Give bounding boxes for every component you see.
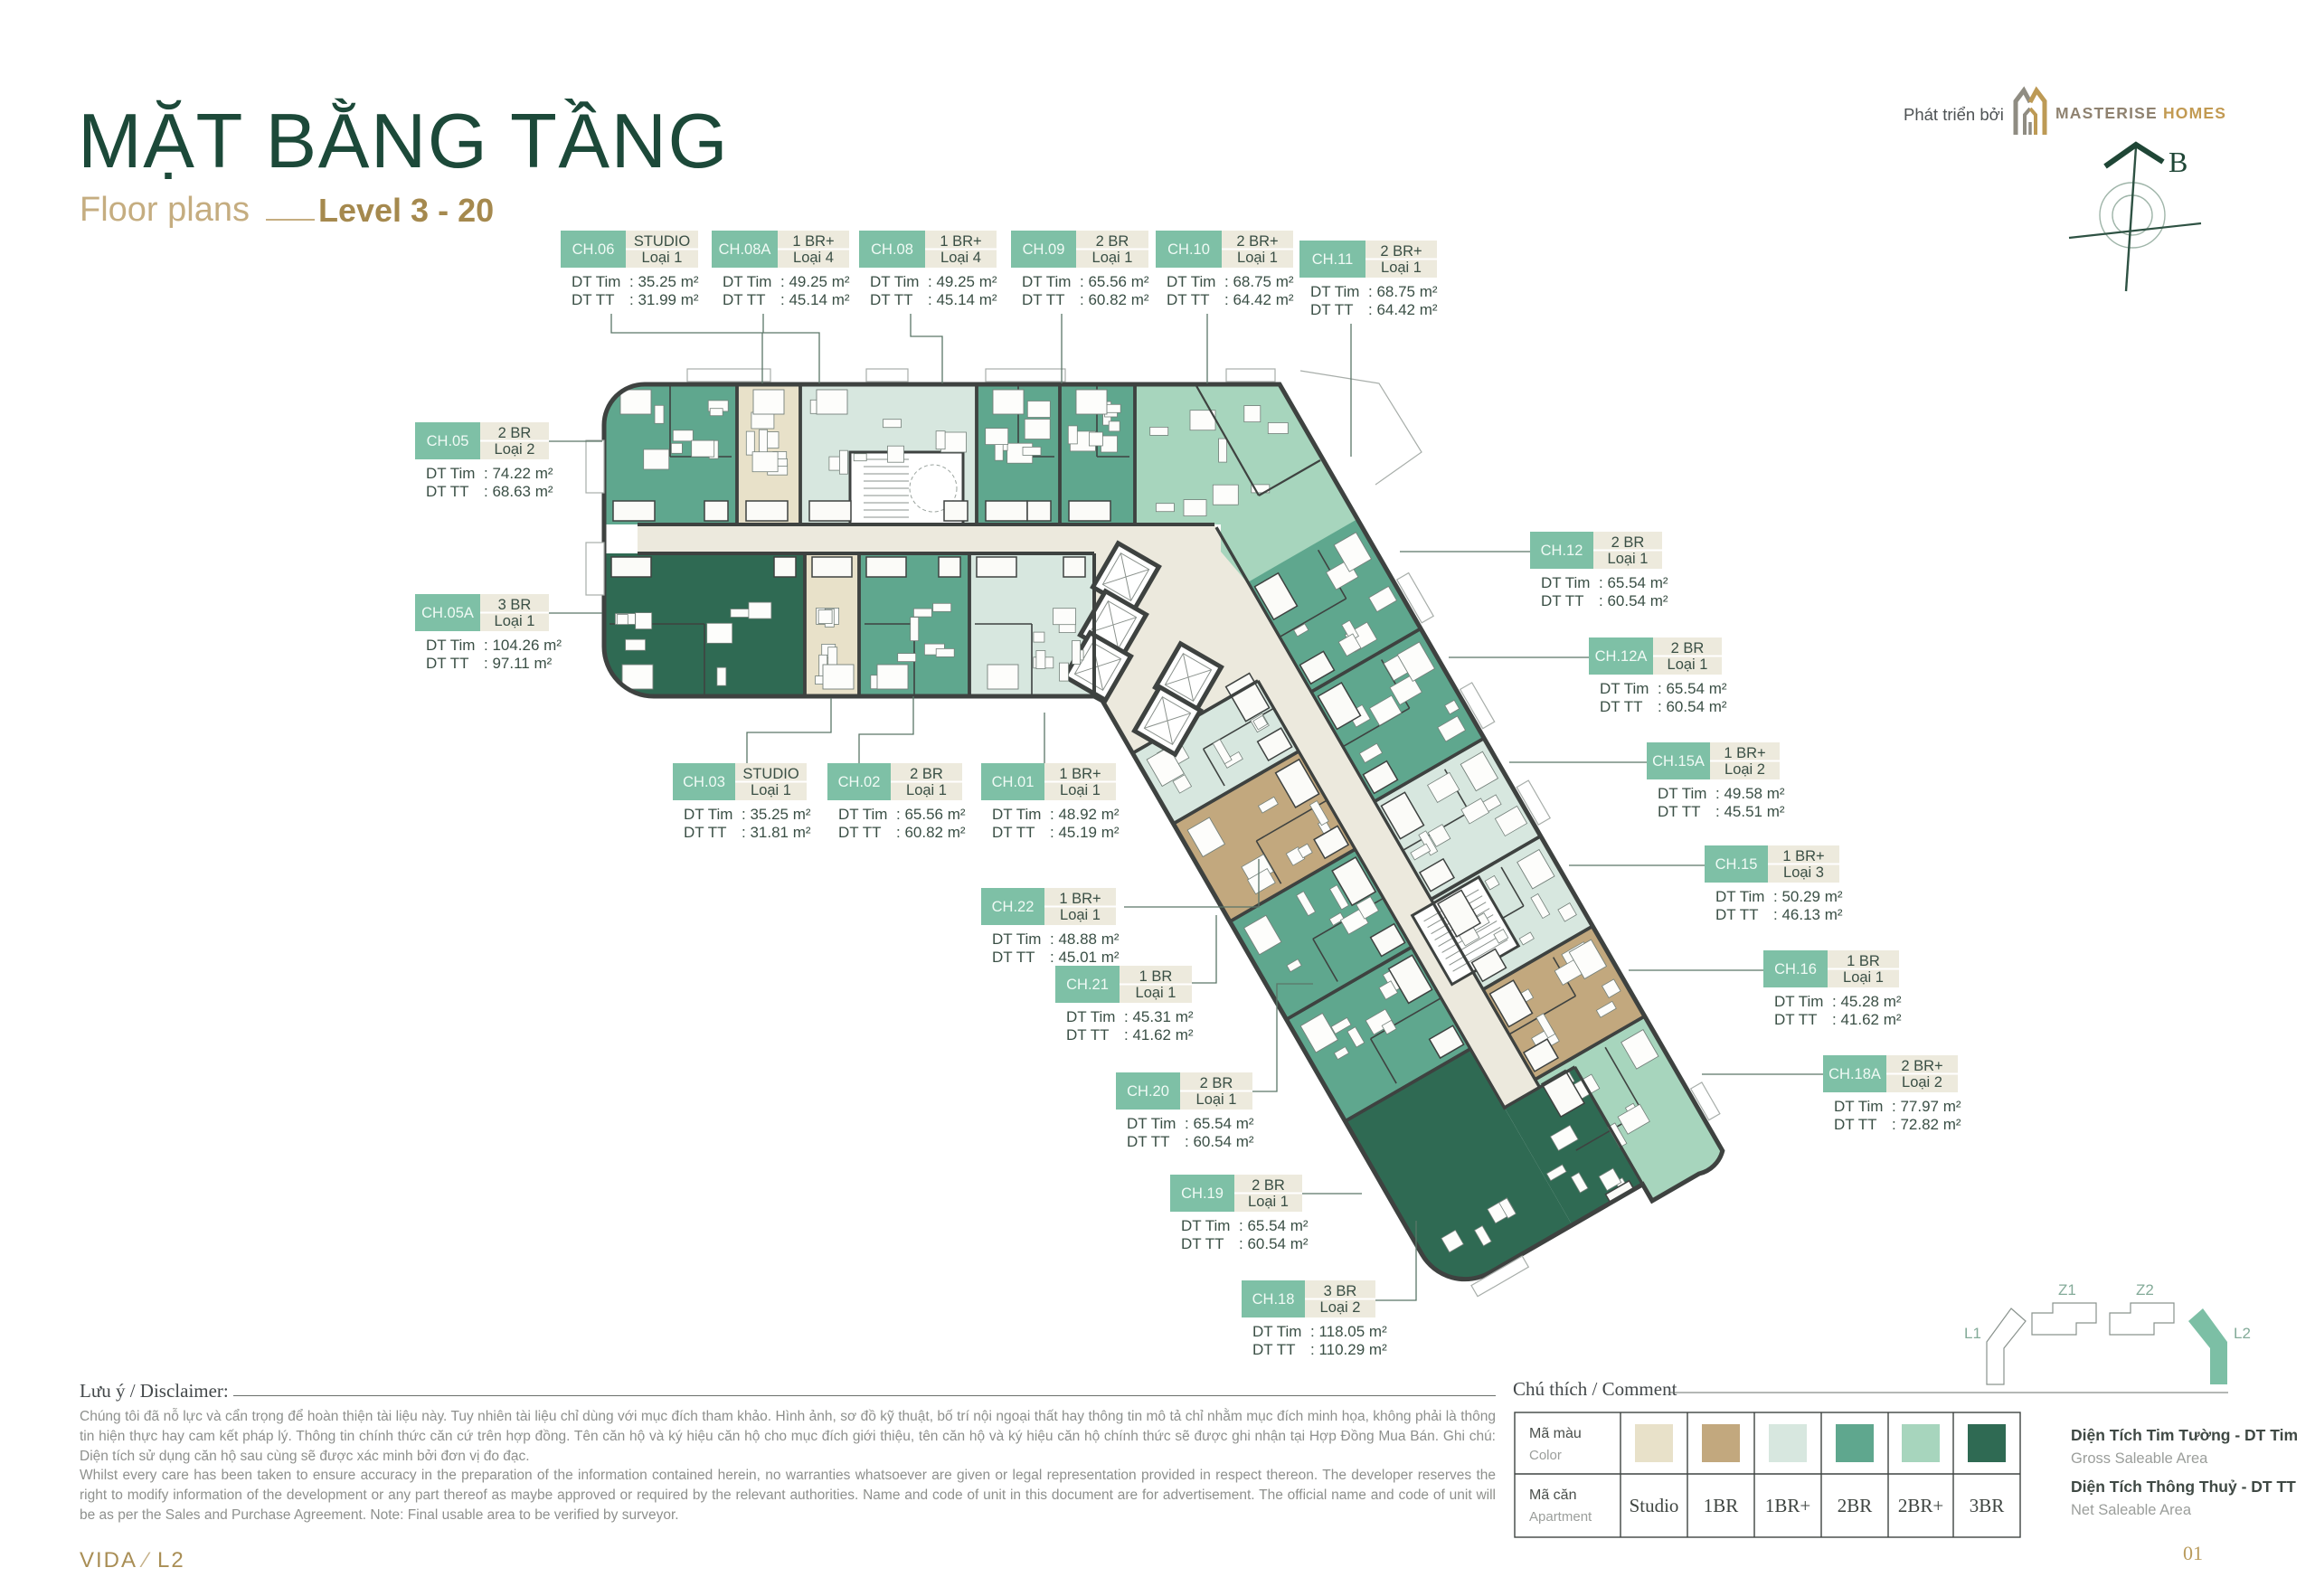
- svg-text:: 45.51 m²: : 45.51 m²: [1715, 803, 1785, 820]
- svg-text:: 31.81 m²: : 31.81 m²: [742, 824, 811, 841]
- svg-text:DT Tim: DT Tim: [1600, 680, 1649, 697]
- svg-text:1BR: 1BR: [1704, 1495, 1739, 1516]
- svg-text:CH.15: CH.15: [1715, 856, 1758, 873]
- svg-text:Mã căn: Mã căn: [1529, 1487, 1576, 1503]
- svg-text:1 BR+: 1 BR+: [940, 233, 981, 250]
- svg-text:Loại 1: Loại 1: [1237, 250, 1278, 266]
- svg-text:3BR: 3BR: [1970, 1495, 2005, 1516]
- svg-text:Loại 4: Loại 4: [940, 250, 981, 266]
- svg-text:Loại 1: Loại 1: [1668, 656, 1708, 673]
- svg-text:Diện Tích Tim Tường - DT Tim: Diện Tích Tim Tường - DT Tim: [2071, 1426, 2298, 1444]
- svg-text:2BR+: 2BR+: [1898, 1495, 1943, 1516]
- svg-text:: 48.92 m²: : 48.92 m²: [1050, 806, 1120, 823]
- svg-text:: 65.56 m²: : 65.56 m²: [896, 806, 966, 823]
- svg-text:: 45.19 m²: : 45.19 m²: [1050, 824, 1120, 841]
- svg-text:DT TT: DT TT: [1252, 1341, 1296, 1358]
- svg-text:Loại 2: Loại 2: [1902, 1074, 1942, 1091]
- svg-text:: 77.97 m²: : 77.97 m²: [1892, 1098, 1961, 1115]
- svg-text:: 45.28 m²: : 45.28 m²: [1832, 993, 1902, 1010]
- svg-text:: 110.29 m²: : 110.29 m²: [1310, 1341, 1387, 1358]
- svg-text:DT TT: DT TT: [1167, 291, 1210, 308]
- svg-text:2 BR: 2 BR: [1200, 1075, 1233, 1091]
- svg-text:2 BR+: 2 BR+: [1901, 1058, 1942, 1074]
- svg-text:DT Tim: DT Tim: [1252, 1323, 1301, 1340]
- svg-text:: 60.54 m²: : 60.54 m²: [1239, 1235, 1309, 1252]
- svg-text:3 BR: 3 BR: [1324, 1283, 1357, 1299]
- svg-text:DT Tim: DT Tim: [1066, 1008, 1115, 1025]
- svg-text:CH.15A: CH.15A: [1652, 753, 1705, 770]
- svg-text:: 68.75 m²: : 68.75 m²: [1368, 283, 1438, 300]
- svg-text:2 BR+: 2 BR+: [1380, 243, 1422, 260]
- svg-text:: 49.58 m²: : 49.58 m²: [1715, 785, 1785, 802]
- svg-text:DT TT: DT TT: [1834, 1116, 1877, 1133]
- svg-text:STUDIO: STUDIO: [742, 766, 799, 782]
- svg-text:: 49.25 m²: : 49.25 m²: [780, 273, 850, 290]
- svg-text:DT Tim: DT Tim: [684, 806, 732, 823]
- svg-text:1 BR+: 1 BR+: [792, 233, 834, 250]
- svg-text:: 45.01 m²: : 45.01 m²: [1050, 949, 1120, 966]
- svg-text:CH.08A: CH.08A: [719, 241, 771, 258]
- svg-text:Loại 1: Loại 1: [906, 782, 947, 798]
- svg-text:: 35.25 m²: : 35.25 m²: [742, 806, 811, 823]
- svg-text:Loại 3: Loại 3: [1783, 864, 1824, 881]
- svg-text:: 60.54 m²: : 60.54 m²: [1599, 592, 1668, 609]
- svg-text:CH.22: CH.22: [992, 899, 1035, 915]
- svg-text:CH.20: CH.20: [1127, 1083, 1169, 1100]
- svg-text:1 BR+: 1 BR+: [1724, 745, 1765, 761]
- svg-text:Phát triển bởi: Phát triển bởi: [1904, 105, 2004, 124]
- svg-text:DT TT: DT TT: [838, 824, 882, 841]
- svg-text:2 BR: 2 BR: [1611, 534, 1645, 551]
- svg-text:: 65.54 m²: : 65.54 m²: [1658, 680, 1727, 697]
- svg-text:DT TT: DT TT: [1022, 291, 1065, 308]
- svg-text:STUDIO: STUDIO: [634, 233, 691, 250]
- svg-text:DT TT: DT TT: [426, 483, 469, 500]
- svg-text:2 BR: 2 BR: [1096, 233, 1129, 250]
- svg-text:DT TT: DT TT: [992, 949, 1035, 966]
- svg-text:Mã màu: Mã màu: [1529, 1426, 1582, 1441]
- svg-text:DT Tim: DT Tim: [1167, 273, 1215, 290]
- svg-text:CH.21: CH.21: [1066, 977, 1109, 993]
- svg-text:: 97.11 m²: : 97.11 m²: [484, 655, 553, 672]
- svg-text:2 BR: 2 BR: [498, 425, 532, 441]
- svg-text:: 65.54 m²: : 65.54 m²: [1599, 574, 1668, 591]
- svg-text:Loại 2: Loại 2: [495, 441, 535, 458]
- svg-text:Diện Tích Thông Thuỷ - DT TT: Diện Tích Thông Thuỷ - DT TT: [2071, 1478, 2296, 1496]
- svg-text:Loại 1: Loại 1: [1381, 260, 1422, 276]
- svg-text:Loại 1: Loại 1: [1608, 551, 1649, 567]
- svg-text:DT Tim: DT Tim: [1181, 1217, 1230, 1234]
- svg-text:DT TT: DT TT: [684, 824, 727, 841]
- svg-text:DT Tim: DT Tim: [838, 806, 887, 823]
- svg-text:: 64.42 m²: : 64.42 m²: [1224, 291, 1294, 308]
- svg-text:: 35.25 m²: : 35.25 m²: [629, 273, 699, 290]
- svg-text:Loại 2: Loại 2: [1320, 1299, 1361, 1316]
- svg-text:DT TT: DT TT: [1600, 698, 1643, 715]
- svg-text:CH.12: CH.12: [1541, 543, 1583, 559]
- svg-text:CH.02: CH.02: [838, 774, 881, 790]
- svg-text:Loại 1: Loại 1: [1136, 985, 1176, 1001]
- svg-text:: 45.14 m²: : 45.14 m²: [928, 291, 997, 308]
- svg-text:: 41.62 m²: : 41.62 m²: [1124, 1026, 1194, 1044]
- svg-text:CH.10: CH.10: [1167, 241, 1210, 258]
- svg-text:DT Tim: DT Tim: [1127, 1115, 1176, 1132]
- svg-text:Loại 1: Loại 1: [642, 250, 683, 266]
- svg-text:DT Tim: DT Tim: [1541, 574, 1590, 591]
- svg-text:DT TT: DT TT: [1310, 301, 1354, 318]
- svg-text:1 BR: 1 BR: [1847, 953, 1880, 969]
- svg-text:DT Tim: DT Tim: [1658, 785, 1706, 802]
- svg-text:CH.16: CH.16: [1774, 961, 1817, 977]
- svg-text:1 BR+: 1 BR+: [1782, 848, 1824, 864]
- svg-text:DT TT: DT TT: [1715, 906, 1759, 923]
- svg-text:: 49.25 m²: : 49.25 m²: [928, 273, 997, 290]
- svg-text:CH.12A: CH.12A: [1595, 648, 1648, 665]
- svg-text:DT Tim: DT Tim: [870, 273, 919, 290]
- svg-text:2 BR: 2 BR: [1252, 1177, 1285, 1194]
- svg-text:CH.05A: CH.05A: [421, 605, 474, 621]
- svg-text:: 65.56 m²: : 65.56 m²: [1080, 273, 1149, 290]
- svg-text:2 BR: 2 BR: [1671, 640, 1705, 656]
- svg-text:CH.05: CH.05: [427, 433, 469, 449]
- svg-text:DT Tim: DT Tim: [992, 930, 1041, 948]
- svg-text:DT Tim: DT Tim: [1310, 283, 1359, 300]
- svg-text:: 60.54 m²: : 60.54 m²: [1185, 1133, 1254, 1150]
- svg-text:1 BR: 1 BR: [1139, 968, 1173, 985]
- svg-text:Apartment: Apartment: [1529, 1509, 1592, 1525]
- svg-text:Loại 1: Loại 1: [1196, 1091, 1237, 1108]
- svg-text:DT TT: DT TT: [572, 291, 615, 308]
- svg-text:DT Tim: DT Tim: [1774, 993, 1823, 1010]
- svg-text:L1: L1: [1964, 1325, 1981, 1342]
- svg-text:DT Tim: DT Tim: [426, 465, 475, 482]
- svg-text:: 74.22 m²: : 74.22 m²: [484, 465, 553, 482]
- svg-text:DT TT: DT TT: [1181, 1235, 1224, 1252]
- svg-text:CH.06: CH.06: [572, 241, 615, 258]
- svg-text:Loại 1: Loại 1: [1843, 969, 1884, 986]
- svg-text:L2: L2: [2234, 1325, 2251, 1342]
- svg-text:DT TT: DT TT: [426, 655, 469, 672]
- svg-text:CH.19: CH.19: [1181, 1185, 1224, 1202]
- svg-text:: 118.05 m²: : 118.05 m²: [1310, 1323, 1387, 1340]
- svg-text:: 60.82 m²: : 60.82 m²: [1080, 291, 1149, 308]
- svg-text:Net Saleable Area: Net Saleable Area: [2071, 1502, 2192, 1518]
- svg-text:: 60.82 m²: : 60.82 m²: [896, 824, 966, 841]
- svg-text:CH.18A: CH.18A: [1828, 1066, 1881, 1082]
- svg-text:Chú thích / Comment: Chú thích / Comment: [1513, 1378, 1677, 1400]
- svg-text:: 68.75 m²: : 68.75 m²: [1224, 273, 1294, 290]
- svg-text:: 48.88 m²: : 48.88 m²: [1050, 930, 1120, 948]
- svg-text:2 BR+: 2 BR+: [1236, 233, 1278, 250]
- svg-text:: 60.54 m²: : 60.54 m²: [1658, 698, 1727, 715]
- svg-text:Loại 2: Loại 2: [1724, 761, 1765, 778]
- svg-text:DT TT: DT TT: [1127, 1133, 1170, 1150]
- svg-text:DT Tim: DT Tim: [1715, 888, 1764, 905]
- svg-text:CH.08: CH.08: [871, 241, 913, 258]
- svg-text:: 104.26 m²: : 104.26 m²: [484, 637, 562, 654]
- svg-text:1BR+: 1BR+: [1765, 1495, 1810, 1516]
- svg-text:DT Tim: DT Tim: [572, 273, 620, 290]
- svg-text:Studio: Studio: [1630, 1495, 1679, 1516]
- svg-text:Z1: Z1: [2058, 1281, 2076, 1299]
- svg-text:: 65.54 m²: : 65.54 m²: [1239, 1217, 1309, 1234]
- svg-text:DT TT: DT TT: [1541, 592, 1584, 609]
- svg-text:Gross Saleable Area: Gross Saleable Area: [2071, 1450, 2208, 1467]
- svg-text:DT Tim: DT Tim: [1834, 1098, 1883, 1115]
- svg-text:MASTERISE HOMES: MASTERISE HOMES: [2055, 104, 2226, 122]
- svg-text:CH.01: CH.01: [992, 774, 1035, 790]
- svg-text:Loại 1: Loại 1: [495, 613, 535, 629]
- svg-text:DT Tim: DT Tim: [426, 637, 475, 654]
- svg-text:2 BR: 2 BR: [910, 766, 943, 782]
- svg-text:: 41.62 m²: : 41.62 m²: [1832, 1011, 1902, 1028]
- svg-text:: 65.54 m²: : 65.54 m²: [1185, 1115, 1254, 1132]
- svg-text:CH.03: CH.03: [683, 774, 725, 790]
- svg-text:DT Tim: DT Tim: [1022, 273, 1071, 290]
- svg-text:: 64.42 m²: : 64.42 m²: [1368, 301, 1438, 318]
- svg-text:CH.09: CH.09: [1023, 241, 1065, 258]
- svg-text:DT TT: DT TT: [992, 824, 1035, 841]
- svg-text:3 BR: 3 BR: [498, 597, 532, 613]
- svg-text:B: B: [2169, 146, 2187, 178]
- svg-text:DT TT: DT TT: [870, 291, 913, 308]
- svg-text:DT TT: DT TT: [1774, 1011, 1818, 1028]
- svg-text:Color: Color: [1529, 1448, 1562, 1463]
- svg-text:Loại 1: Loại 1: [1092, 250, 1133, 266]
- svg-text:: 45.31 m²: : 45.31 m²: [1124, 1008, 1194, 1025]
- svg-text:DT Tim: DT Tim: [723, 273, 771, 290]
- svg-text:Loại 4: Loại 4: [793, 250, 834, 266]
- svg-text:CH.11: CH.11: [1312, 251, 1354, 268]
- svg-text:: 72.82 m²: : 72.82 m²: [1892, 1116, 1961, 1133]
- svg-text:DT TT: DT TT: [723, 291, 766, 308]
- svg-text:DT TT: DT TT: [1066, 1026, 1110, 1044]
- svg-text:DT TT: DT TT: [1658, 803, 1701, 820]
- svg-text:: 50.29 m²: : 50.29 m²: [1773, 888, 1843, 905]
- svg-text:: 31.99 m²: : 31.99 m²: [629, 291, 699, 308]
- svg-text:: 45.14 m²: : 45.14 m²: [780, 291, 850, 308]
- svg-text:CH.18: CH.18: [1252, 1291, 1295, 1308]
- svg-text:Loại 1: Loại 1: [1060, 782, 1101, 798]
- svg-text:Loại 1: Loại 1: [1060, 907, 1101, 923]
- svg-text:DT Tim: DT Tim: [992, 806, 1041, 823]
- svg-text:2BR: 2BR: [1838, 1495, 1873, 1516]
- svg-text:: 46.13 m²: : 46.13 m²: [1773, 906, 1843, 923]
- svg-text:Loại 1: Loại 1: [1248, 1194, 1289, 1210]
- svg-text:: 68.63 m²: : 68.63 m²: [484, 483, 553, 500]
- svg-text:1 BR+: 1 BR+: [1059, 891, 1101, 907]
- svg-text:1 BR+: 1 BR+: [1059, 766, 1101, 782]
- svg-text:Loại 1: Loại 1: [751, 782, 791, 798]
- svg-text:Z2: Z2: [2136, 1281, 2154, 1299]
